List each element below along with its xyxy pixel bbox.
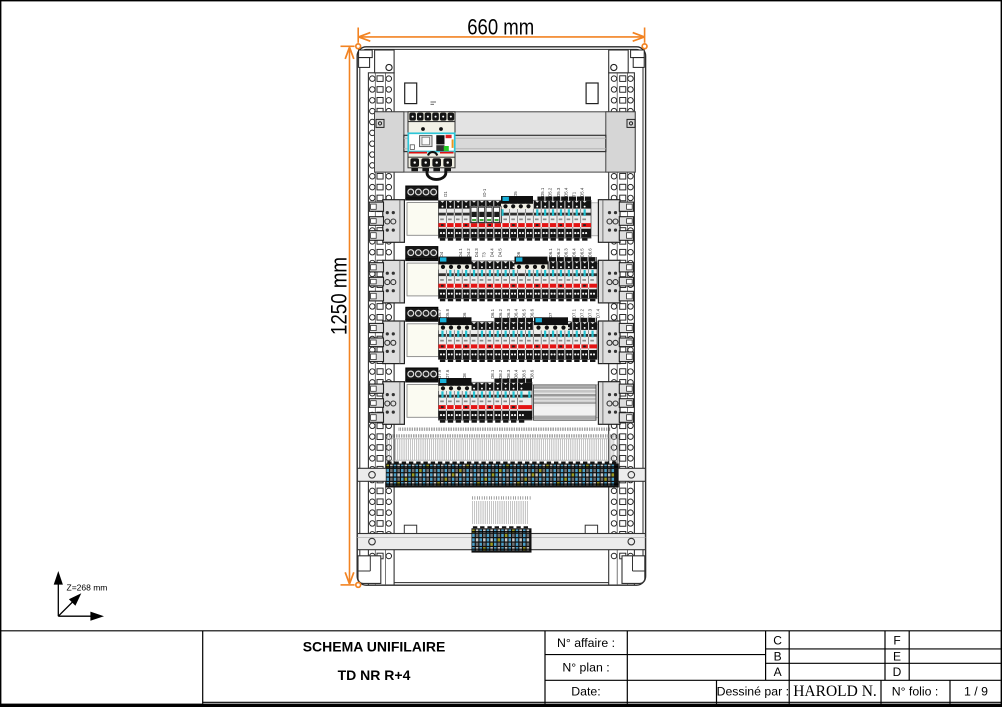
svg-text:D6: D6	[462, 312, 467, 318]
svg-text:D1: D1	[443, 191, 448, 197]
svg-text:D: D	[893, 665, 902, 679]
svg-text:D6.3: D6.3	[564, 248, 569, 258]
svg-text:D5.1: D5.1	[540, 187, 545, 197]
svg-text:D6.2: D6.2	[498, 308, 503, 318]
svg-text:D5: D5	[513, 191, 518, 197]
svg-text:HAROLD N.: HAROLD N.	[793, 683, 877, 700]
svg-text:C: C	[773, 634, 782, 648]
svg-text:D8.1: D8.1	[490, 369, 495, 379]
svg-text:D4.2: D4.2	[466, 248, 471, 258]
svg-text:D6.4: D6.4	[514, 308, 519, 318]
svg-text:T3: T3	[482, 252, 487, 258]
svg-text:D6: D6	[516, 251, 521, 257]
svg-text:D6.5: D6.5	[580, 248, 585, 258]
svg-text:SCHEMA UNIFILAIRE: SCHEMA UNIFILAIRE	[303, 639, 446, 655]
svg-text:F: F	[893, 634, 900, 648]
svg-text:D5.4: D5.4	[564, 187, 569, 197]
svg-text:B: B	[774, 649, 782, 663]
svg-text:D5.4: D5.4	[580, 187, 585, 197]
svg-text:D6.1: D6.1	[548, 248, 553, 258]
svg-text:D6.5: D6.5	[522, 308, 527, 318]
svg-text:A: A	[774, 665, 782, 679]
svg-text:D7.4: D7.4	[595, 308, 600, 318]
svg-text:D8.6: D8.6	[530, 369, 535, 379]
svg-text:Dessiné par :: Dessiné par :	[717, 685, 789, 699]
svg-text:D6.6: D6.6	[587, 248, 592, 258]
svg-text:D8.4: D8.4	[514, 369, 519, 379]
svg-text:E: E	[893, 649, 901, 663]
svg-text:D7: D7	[548, 312, 553, 318]
svg-text:TD NR R+4: TD NR R+4	[338, 667, 411, 683]
svg-text:N° plan :: N° plan :	[562, 661, 609, 675]
svg-text:D4: D4	[439, 251, 444, 257]
svg-text:D8: D8	[462, 373, 467, 379]
svg-text:D5.2: D5.2	[548, 187, 553, 197]
svg-text:1250 mm: 1250 mm	[327, 257, 352, 335]
svg-text:D8.2: D8.2	[498, 369, 503, 379]
svg-text:Z=268 mm: Z=268 mm	[67, 583, 108, 593]
svg-text:D7.1: D7.1	[572, 308, 577, 318]
svg-text:N° folio :: N° folio :	[892, 685, 939, 699]
svg-text:D6.4: D6.4	[572, 248, 577, 258]
svg-text:D6.1: D6.1	[490, 308, 495, 318]
svg-text:D4.5: D4.5	[498, 248, 503, 258]
svg-text:Date:: Date:	[571, 685, 600, 699]
svg-text:D8.5: D8.5	[522, 369, 527, 379]
svg-text:ID-1: ID-1	[482, 188, 487, 197]
svg-text:D6.2: D6.2	[556, 248, 561, 258]
svg-text:660 mm: 660 mm	[467, 15, 534, 40]
svg-text:D8.3: D8.3	[506, 369, 511, 379]
svg-text:1 / 9: 1 / 9	[964, 685, 988, 699]
svg-text:D7.6: D7.6	[445, 369, 450, 379]
svg-text:D4.4: D4.4	[490, 248, 495, 258]
svg-text:N° affaire :: N° affaire :	[557, 636, 615, 650]
svg-text:D5.8: D5.8	[445, 308, 450, 318]
svg-text:D4.3: D4.3	[474, 248, 479, 258]
svg-text:D6.3: D6.3	[506, 308, 511, 318]
svg-text:D5.3: D5.3	[556, 187, 561, 197]
svg-text:D7.3: D7.3	[587, 308, 592, 318]
svg-text:D4.1: D4.1	[458, 248, 463, 258]
svg-text:T1: T1	[572, 191, 577, 197]
svg-text:D6.6: D6.6	[530, 308, 535, 318]
svg-text:D7.2: D7.2	[580, 308, 585, 318]
